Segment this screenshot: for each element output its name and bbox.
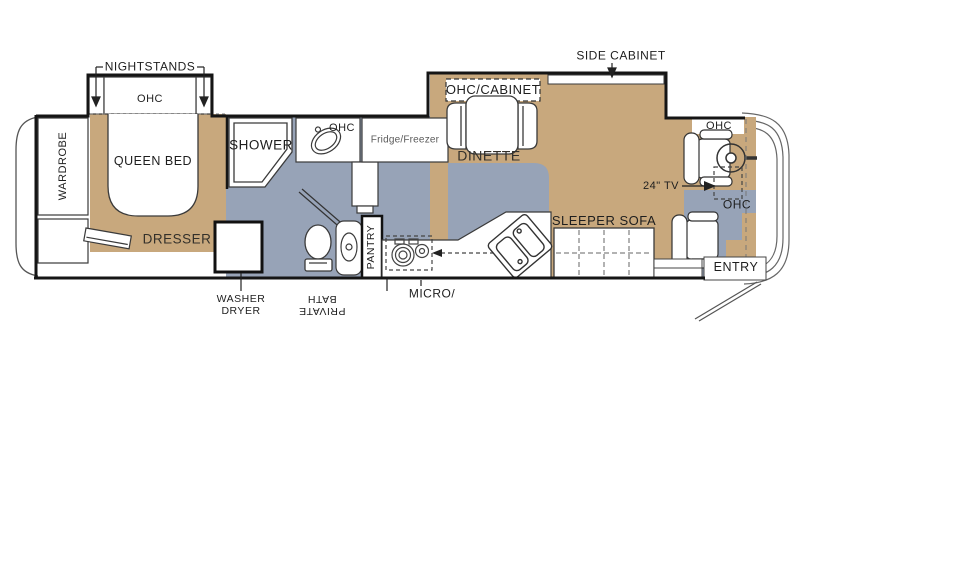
rv-floorplan: NIGHTSTANDS OHC QUEEN BED WARDROBE DRESS… bbox=[0, 0, 960, 570]
entry-step-2 bbox=[654, 268, 702, 277]
entry-step-1 bbox=[654, 259, 702, 268]
dinette-set bbox=[447, 96, 537, 154]
label-cab-ohc-top: OHC bbox=[706, 120, 732, 132]
label-entry: ENTRY bbox=[714, 261, 759, 275]
label-ohc-cabinet: OHC/CABINET bbox=[446, 83, 540, 97]
label-side-cabinet: SIDE CABINET bbox=[576, 49, 665, 62]
label-dinette: DINETTE bbox=[457, 148, 520, 163]
label-fridge: Fridge/Freezer bbox=[371, 135, 439, 146]
label-wardrobe: WARDROBE bbox=[57, 132, 69, 200]
entry-handrail bbox=[695, 282, 761, 321]
driver-seat bbox=[684, 130, 732, 186]
washer-dryer-box bbox=[215, 222, 262, 272]
bath-vanity-2 bbox=[336, 221, 362, 275]
label-bed-ohc: OHC bbox=[137, 93, 163, 105]
fridge-end-wall bbox=[352, 162, 378, 206]
label-washer-dryer: WASHER DRYER bbox=[217, 293, 266, 317]
label-shower: SHOWER bbox=[229, 139, 293, 154]
label-dresser: DRESSER bbox=[143, 233, 212, 248]
label-sleeper-sofa: SLEEPER SOFA bbox=[552, 214, 656, 228]
sleeper-sofa-shape bbox=[554, 228, 654, 278]
label-bath-ohc: OHC bbox=[329, 122, 355, 134]
label-pantry: PANTRY bbox=[366, 225, 378, 270]
toilet bbox=[305, 225, 332, 271]
label-nightstands: NIGHTSTANDS bbox=[105, 60, 196, 73]
label-micro: MICRO/ bbox=[409, 287, 455, 300]
dinette-table bbox=[466, 96, 518, 154]
rear-cabinet bbox=[38, 219, 88, 263]
dinette-chair-left bbox=[447, 103, 466, 149]
dinette-chair-right bbox=[518, 103, 537, 149]
side-cabinet-strip bbox=[548, 75, 664, 84]
label-private-bath: PRIVATE BATH bbox=[299, 293, 346, 317]
label-queen-bed: QUEEN BED bbox=[114, 155, 192, 169]
label-tv: 24" TV bbox=[643, 180, 679, 192]
label-cab-ohc-dash: OHC bbox=[723, 198, 751, 211]
